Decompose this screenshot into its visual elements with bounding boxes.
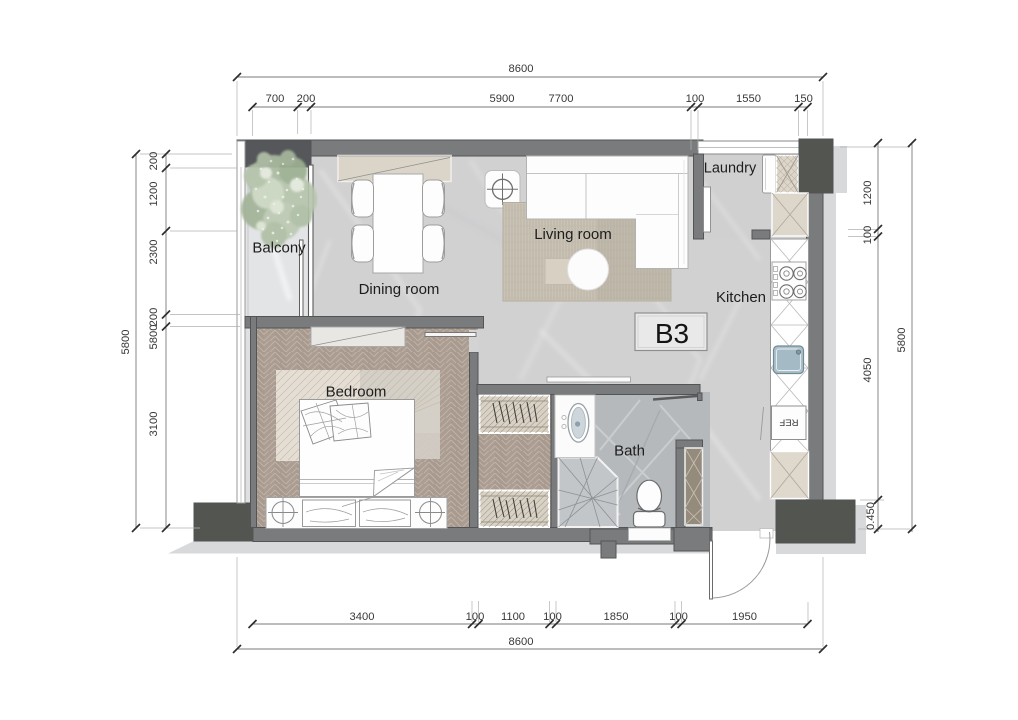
svg-text:1100: 1100 xyxy=(501,611,525,623)
svg-text:5900: 5900 xyxy=(490,93,515,105)
svg-text:1550: 1550 xyxy=(736,93,761,105)
svg-text:1200: 1200 xyxy=(862,181,874,206)
svg-text:1850: 1850 xyxy=(604,611,629,623)
svg-text:200: 200 xyxy=(148,152,160,171)
svg-text:200: 200 xyxy=(297,93,316,105)
svg-text:0.450: 0.450 xyxy=(865,502,877,530)
svg-text:1950: 1950 xyxy=(732,611,757,623)
svg-text:100: 100 xyxy=(543,611,562,623)
svg-text:4050: 4050 xyxy=(862,358,874,383)
svg-text:Living room: Living room xyxy=(534,226,612,243)
svg-text:100: 100 xyxy=(669,611,688,623)
svg-text:200: 200 xyxy=(148,308,160,327)
svg-text:700: 700 xyxy=(266,93,285,105)
svg-text:150: 150 xyxy=(794,93,813,105)
svg-text:100: 100 xyxy=(686,93,705,105)
svg-text:5800: 5800 xyxy=(896,328,908,353)
svg-text:100: 100 xyxy=(466,611,485,623)
svg-text:8600: 8600 xyxy=(509,636,534,648)
svg-text:2300: 2300 xyxy=(148,240,160,265)
svg-text:5800: 5800 xyxy=(148,325,160,350)
svg-text:3100: 3100 xyxy=(148,412,160,437)
svg-text:Bath: Bath xyxy=(614,443,645,460)
svg-text:Balcony: Balcony xyxy=(252,240,306,257)
svg-text:8600: 8600 xyxy=(509,63,534,75)
svg-text:Kitchen: Kitchen xyxy=(716,289,766,306)
svg-text:7700: 7700 xyxy=(549,93,574,105)
svg-text:Laundry: Laundry xyxy=(704,161,757,177)
svg-text:5800: 5800 xyxy=(120,330,132,355)
svg-text:B3: B3 xyxy=(655,318,689,349)
svg-text:REF: REF xyxy=(779,417,798,428)
svg-text:100: 100 xyxy=(862,226,874,245)
svg-text:1200: 1200 xyxy=(148,182,160,207)
svg-text:Bedroom: Bedroom xyxy=(326,384,387,401)
svg-text:3400: 3400 xyxy=(350,611,375,623)
svg-text:Dining room: Dining room xyxy=(359,281,440,298)
